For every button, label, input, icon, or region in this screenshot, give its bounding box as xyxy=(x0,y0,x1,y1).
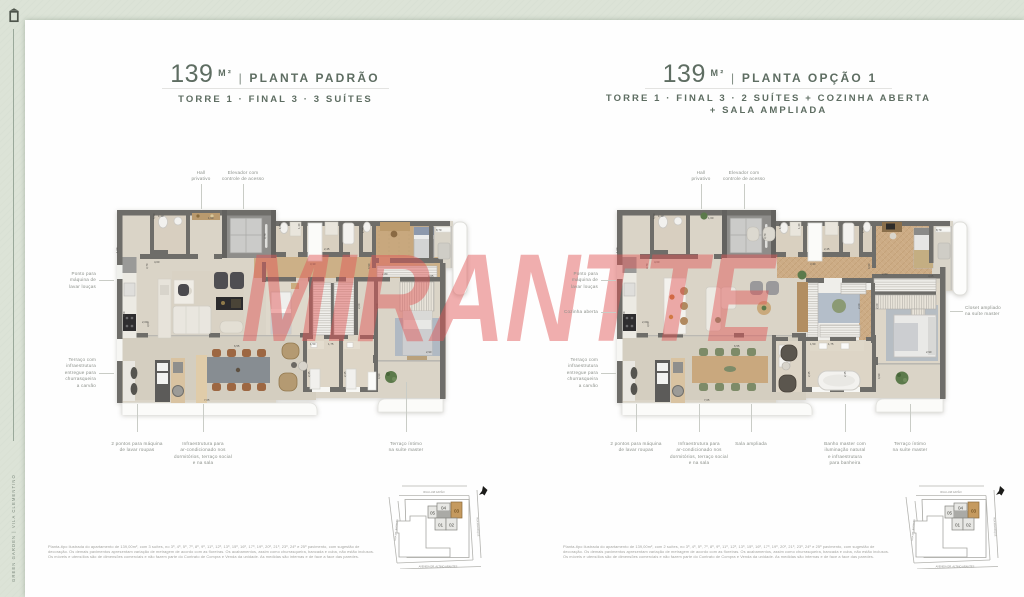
svg-text:8,70: 8,70 xyxy=(936,228,942,232)
svg-text:1,60: 1,60 xyxy=(615,247,619,253)
svg-text:1,10: 1,10 xyxy=(658,214,664,218)
svg-text:RUA LUIZ GATÃO: RUA LUIZ GATÃO xyxy=(423,489,444,494)
svg-text:1,55: 1,55 xyxy=(361,227,365,233)
svg-text:RUA MAIRINQUE: RUA MAIRINQUE xyxy=(475,517,479,537)
svg-text:6,55: 6,55 xyxy=(234,344,240,348)
svg-text:3,70: 3,70 xyxy=(645,263,649,269)
svg-text:RUA LUIZ GATÃO: RUA LUIZ GATÃO xyxy=(940,489,961,494)
svg-text:1,50: 1,50 xyxy=(310,342,316,346)
svg-text:1,60: 1,60 xyxy=(708,216,714,220)
svg-text:02: 02 xyxy=(966,523,972,528)
svg-text:0,90: 0,90 xyxy=(367,263,371,269)
svg-text:0,90: 0,90 xyxy=(377,373,381,379)
svg-text:1,55: 1,55 xyxy=(778,223,782,229)
svg-text:3,30: 3,30 xyxy=(310,262,316,266)
svg-text:1,60: 1,60 xyxy=(208,216,214,220)
svg-text:2,90: 2,90 xyxy=(426,350,432,354)
svg-text:3,00: 3,00 xyxy=(146,321,150,327)
svg-text:8,70: 8,70 xyxy=(436,228,442,232)
svg-text:3,70: 3,70 xyxy=(763,233,767,239)
svg-text:5,90: 5,90 xyxy=(152,213,156,219)
svg-text:1,55: 1,55 xyxy=(278,223,282,229)
svg-text:1,55: 1,55 xyxy=(861,227,865,233)
svg-text:2,45: 2,45 xyxy=(307,371,311,377)
svg-text:1,40: 1,40 xyxy=(297,223,301,229)
svg-text:04: 04 xyxy=(441,506,447,511)
svg-text:05: 05 xyxy=(947,511,953,516)
svg-text:3,00: 3,00 xyxy=(122,311,126,317)
svg-text:2,90: 2,90 xyxy=(926,350,932,354)
svg-text:4,65: 4,65 xyxy=(928,274,934,278)
svg-text:RUA MAIRINQUE: RUA MAIRINQUE xyxy=(992,517,996,537)
svg-text:0,90: 0,90 xyxy=(867,263,871,269)
svg-text:AVENIDA DR. ALTINO ARANTES: AVENIDA DR. ALTINO ARANTES xyxy=(419,565,458,569)
svg-text:01: 01 xyxy=(438,523,444,528)
svg-text:02: 02 xyxy=(449,523,455,528)
svg-text:4,60: 4,60 xyxy=(654,260,660,264)
svg-text:7,05: 7,05 xyxy=(704,398,710,402)
svg-text:2,60: 2,60 xyxy=(375,303,379,309)
svg-text:2,60: 2,60 xyxy=(875,303,879,309)
svg-text:AVENIDA DR. ALTINO ARANTES: AVENIDA DR. ALTINO ARANTES xyxy=(936,565,975,569)
svg-text:01: 01 xyxy=(955,523,961,528)
svg-text:2,60: 2,60 xyxy=(357,303,361,309)
svg-text:6,55: 6,55 xyxy=(734,344,740,348)
svg-text:2,60: 2,60 xyxy=(857,303,861,309)
svg-text:2,80: 2,80 xyxy=(382,272,388,276)
svg-text:03: 03 xyxy=(971,509,977,514)
svg-text:2,45: 2,45 xyxy=(343,371,347,377)
svg-text:3,00: 3,00 xyxy=(622,311,626,317)
svg-text:1,40: 1,40 xyxy=(797,223,801,229)
svg-text:03: 03 xyxy=(454,509,460,514)
svg-text:2,45: 2,45 xyxy=(807,371,811,377)
svg-text:2,45: 2,45 xyxy=(324,247,330,251)
svg-text:2,45: 2,45 xyxy=(843,371,847,377)
svg-text:1,50: 1,50 xyxy=(810,342,816,346)
svg-text:7,05: 7,05 xyxy=(204,398,210,402)
svg-text:04: 04 xyxy=(958,506,964,511)
svg-text:3,70: 3,70 xyxy=(145,263,149,269)
svg-text:1,75: 1,75 xyxy=(328,342,334,346)
svg-text:0,90: 0,90 xyxy=(877,373,881,379)
svg-text:5,90: 5,90 xyxy=(652,213,656,219)
svg-text:3,00: 3,00 xyxy=(646,321,650,327)
svg-text:1,75: 1,75 xyxy=(828,342,834,346)
svg-text:1,10: 1,10 xyxy=(158,214,164,218)
svg-text:3,30: 3,30 xyxy=(810,262,816,266)
svg-text:05: 05 xyxy=(430,511,436,516)
svg-text:3,70: 3,70 xyxy=(263,233,267,239)
svg-text:2,80: 2,80 xyxy=(882,272,888,276)
svg-text:2,45: 2,45 xyxy=(824,247,830,251)
svg-text:1,60: 1,60 xyxy=(115,247,119,253)
svg-text:4,65: 4,65 xyxy=(428,274,434,278)
svg-text:4,60: 4,60 xyxy=(154,260,160,264)
